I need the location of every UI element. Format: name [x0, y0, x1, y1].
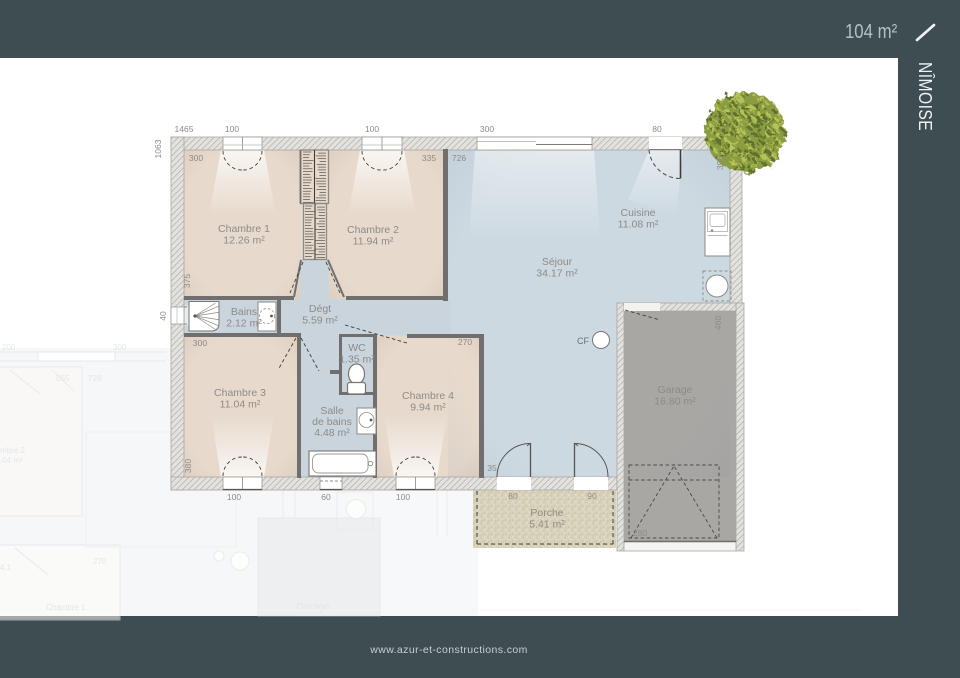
svg-text:2.12 m²: 2.12 m²: [226, 318, 262, 330]
svg-text:270: 270: [458, 337, 472, 347]
svg-text:300: 300: [189, 153, 203, 163]
svg-text:4.1: 4.1: [0, 563, 12, 572]
svg-text:100: 100: [225, 124, 239, 134]
svg-text:11.04 m²: 11.04 m²: [220, 399, 261, 411]
svg-text:100: 100: [227, 492, 241, 502]
svg-text:200: 200: [2, 343, 16, 352]
svg-text:335: 335: [422, 153, 436, 163]
svg-text:80: 80: [508, 491, 518, 501]
svg-text:1465: 1465: [175, 124, 194, 134]
svg-text:90: 90: [587, 491, 597, 501]
svg-text:12.26 m²: 12.26 m²: [223, 235, 265, 247]
svg-text:065: 065: [56, 374, 70, 383]
svg-text:Chambre 4: Chambre 4: [402, 390, 454, 402]
svg-text:4.48 m²: 4.48 m²: [314, 427, 350, 439]
svg-text:Cuisine: Cuisine: [620, 207, 655, 219]
svg-text:34.17 m²: 34.17 m²: [536, 268, 578, 280]
svg-text:80: 80: [652, 124, 662, 134]
svg-text:396: 396: [715, 156, 725, 170]
svg-text:Chambre 1: Chambre 1: [218, 223, 270, 235]
svg-text:Dégt: Dégt: [309, 303, 331, 315]
svg-text:11.08 m²: 11.08 m²: [618, 219, 659, 231]
svg-text:380: 380: [183, 459, 193, 473]
svg-text:300: 300: [193, 338, 207, 348]
svg-text:460: 460: [713, 316, 723, 330]
svg-text:Chambre 1: Chambre 1: [46, 603, 86, 612]
svg-text:1063: 1063: [153, 139, 163, 158]
svg-text:60: 60: [321, 492, 331, 502]
svg-text:Chambre 3: Chambre 3: [214, 387, 266, 399]
svg-text:40: 40: [158, 311, 168, 321]
svg-text:1.35 m²: 1.35 m²: [339, 354, 375, 366]
svg-text:Séjour: Séjour: [542, 256, 573, 268]
svg-text:728: 728: [88, 374, 102, 383]
svg-text:Chambre 2: Chambre 2: [347, 224, 399, 236]
svg-text:300: 300: [113, 343, 127, 352]
svg-text:375: 375: [182, 274, 192, 288]
svg-text:mbre 2: mbre 2: [0, 446, 25, 455]
svg-text:CF: CF: [577, 336, 589, 346]
svg-text:Garage: Garage: [296, 602, 330, 613]
svg-text:5.41 m²: 5.41 m²: [529, 519, 565, 531]
svg-text:11.94 m²: 11.94 m²: [353, 236, 394, 248]
svg-text:300: 300: [480, 124, 494, 134]
svg-text:Bains: Bains: [231, 306, 257, 318]
svg-text:5.59 m²: 5.59 m²: [302, 315, 338, 327]
svg-text:16.80 m²: 16.80 m²: [654, 396, 696, 408]
svg-text:726: 726: [452, 153, 466, 163]
svg-text:Porche: Porche: [530, 507, 563, 519]
svg-text:Garage: Garage: [657, 384, 692, 396]
svg-text:.04 m²: .04 m²: [0, 456, 23, 465]
svg-text:270: 270: [93, 557, 107, 566]
svg-text:9.94 m²: 9.94 m²: [410, 402, 446, 414]
svg-text:280: 280: [633, 528, 647, 538]
svg-text:35: 35: [487, 463, 497, 473]
svg-text:WC: WC: [348, 342, 366, 354]
svg-text:100: 100: [365, 124, 379, 134]
svg-text:100: 100: [396, 492, 410, 502]
